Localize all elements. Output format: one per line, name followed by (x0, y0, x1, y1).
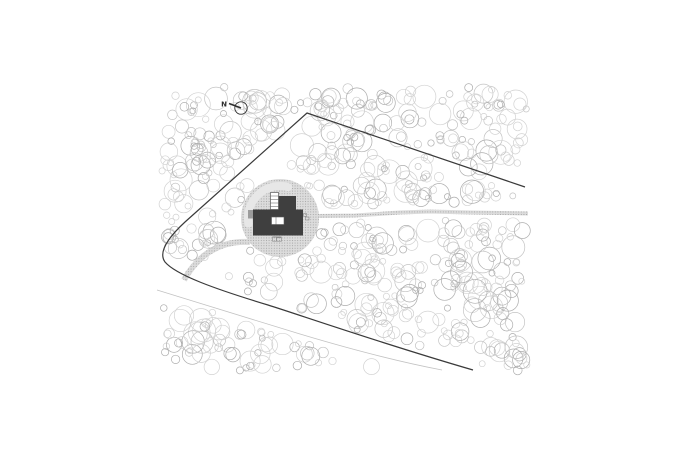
tree-canopy-circle (460, 108, 482, 130)
tree-canopy-circle (502, 236, 525, 259)
tree-canopy-circle (331, 297, 342, 308)
tree-canopy-circle (476, 140, 497, 161)
stair-outline (271, 193, 279, 210)
tree-canopy-circle (519, 278, 525, 284)
north-label: N (221, 101, 227, 109)
tree-canopy-circle (240, 179, 254, 193)
tree-canopy-circle (296, 270, 307, 281)
tree-canopy-circle (329, 265, 344, 280)
tree-canopy-circle (225, 188, 244, 207)
tree-canopy-circle (484, 103, 490, 109)
tree-canopy-circle (185, 203, 191, 209)
tree-canopy-circle (399, 104, 417, 122)
tree-canopy-circle (415, 341, 424, 350)
tree-canopy-circle (450, 335, 462, 347)
tree-canopy-circle (171, 183, 180, 192)
tree-canopy-circle (221, 84, 228, 91)
driveway (184, 242, 250, 280)
tree-canopy-circle (260, 283, 277, 300)
stair-icon (271, 193, 279, 210)
tree-canopy-circle (449, 249, 472, 272)
tree-canopy-circle (287, 161, 296, 170)
tree-canopy-circle (343, 84, 353, 94)
tree-canopy-circle (318, 153, 332, 167)
tree-canopy-circle (444, 194, 450, 200)
tree-canopy-circle (524, 362, 530, 368)
tree-canopy-circle (159, 168, 165, 174)
tree-canopy-circle (366, 320, 373, 327)
tree-canopy-circle (350, 261, 358, 269)
tree-canopy-circle (414, 141, 422, 149)
tree-canopy-circle (220, 111, 226, 117)
tree-canopy-circle (514, 259, 520, 265)
tree-canopy-circle (318, 347, 329, 358)
tree-canopy-circle (291, 106, 298, 113)
tree-canopy-circle (395, 271, 416, 292)
tree-canopy-circle (327, 132, 335, 140)
tree-canopy-circle (213, 161, 227, 175)
tree-canopy-circle (415, 316, 422, 323)
tree-canopy-circle (167, 156, 187, 176)
tree-canopy-circle (247, 247, 254, 254)
tree-canopy-circle (303, 98, 312, 107)
tree-canopy-circle (378, 278, 392, 292)
tree-canopy-circle (331, 200, 338, 207)
tree-canopy-circle (506, 218, 520, 232)
tree-canopy-circle (357, 219, 365, 227)
tree-canopy-circle (381, 321, 387, 327)
tree-canopy-circle (344, 134, 350, 140)
tree-canopy-circle (209, 211, 216, 218)
tree-canopy-circle (430, 255, 440, 265)
tree-canopy-circle (487, 330, 494, 337)
tree-canopy-circle (249, 280, 256, 287)
tree-canopy-circle (162, 125, 175, 138)
tree-canopy-circle (465, 241, 473, 249)
tree-canopy-circle (173, 214, 179, 220)
tree-canopy-circle (504, 361, 513, 370)
tree-canopy-circle (442, 217, 449, 224)
tree-canopy-circle (504, 92, 512, 100)
tree-canopy-circle (464, 93, 472, 101)
tree-canopy-circle (488, 183, 494, 189)
tree-canopy-circle (514, 98, 526, 110)
tree-canopy-circle (273, 364, 281, 372)
tree-canopy-circle (459, 158, 477, 176)
tree-canopy-circle (465, 84, 473, 92)
tree-canopy-circle (504, 259, 511, 266)
tree-canopy-circle (321, 229, 328, 236)
tree-canopy-circle (263, 108, 271, 116)
tree-canopy-circle (415, 163, 421, 169)
tree-canopy-circle (413, 85, 436, 108)
tree-canopy-circle (310, 89, 321, 100)
tree-canopy-circle (478, 247, 501, 270)
tree-canopy-circle (500, 319, 512, 331)
tree-canopy-circle (475, 341, 487, 353)
tree-canopy-circle (380, 258, 386, 264)
tree-canopy-circle (354, 327, 360, 333)
courtyard-opening (272, 217, 285, 225)
footpath (316, 212, 528, 217)
tree-canopy-circle (443, 130, 459, 146)
tree-canopy-circle (384, 96, 393, 105)
tree-canopy-circle (469, 234, 487, 252)
tree-canopy-circle (501, 152, 510, 161)
tree-canopy-circle (444, 305, 450, 311)
tree-canopy-circle (251, 91, 270, 110)
tree-canopy-circle (329, 357, 336, 364)
tree-canopy-circle (479, 291, 499, 311)
tree-canopy-circle (500, 109, 516, 125)
tree-canopy-circle (429, 103, 451, 125)
tree-canopy-circle (337, 144, 355, 162)
tree-canopy-circle (482, 338, 501, 357)
tree-canopy-circle (187, 127, 196, 136)
tree-canopy-circle (161, 305, 168, 312)
tree-canopy-circle (346, 160, 355, 169)
tree-canopy-circle (374, 312, 386, 324)
tree-canopy-circle (406, 238, 418, 250)
site-plan-page: N (0, 0, 700, 453)
tree-canopy-circle (244, 288, 251, 295)
tree-canopy-circle (447, 120, 457, 130)
tree-canopy-circle (498, 227, 506, 235)
tree-canopy-circle (297, 303, 307, 313)
tree-canopy-circle (417, 219, 440, 242)
tree-canopy-circle (185, 132, 192, 139)
tree-canopy-circle (333, 223, 346, 236)
tree-canopy-circle (445, 260, 451, 266)
tree-canopy-circle (254, 356, 272, 374)
tree-canopy-circle (446, 91, 453, 98)
tree-canopy-circle (338, 247, 345, 254)
tree-canopy-circle (195, 97, 201, 103)
tree-canopy-circle (490, 123, 501, 134)
tree-canopy-circle (293, 361, 302, 370)
tree-canopy-circle (371, 102, 377, 108)
tree-canopy-circle (514, 160, 521, 167)
tree-canopy-circle (199, 208, 216, 225)
tree-canopy-circle (332, 289, 342, 299)
tree-canopy-circle (362, 295, 377, 310)
tree-canopy-circle (203, 116, 209, 122)
tree-canopy-circle (513, 122, 522, 131)
tree-canopy-circle (297, 165, 304, 172)
courtyard-outline (272, 217, 285, 225)
tree-canopy-circle (313, 247, 322, 256)
tree-canopy-circle (505, 312, 524, 331)
tree-canopy-circle (456, 250, 468, 262)
tree-canopy-circle (504, 90, 527, 113)
tree-canopy-circle (290, 134, 313, 157)
tree-canopy-circle (428, 140, 434, 146)
tree-canopy-circle (396, 89, 411, 104)
tree-canopy-circle (396, 165, 410, 179)
tree-canopy-circle (204, 359, 219, 374)
tree-canopy-circle (172, 92, 179, 99)
tree-canopy-circle (268, 331, 274, 337)
tree-canopy-circle (513, 366, 522, 375)
tree-canopy-circle (417, 329, 425, 337)
tree-canopy-circle (171, 355, 179, 363)
tree-canopy-circle (449, 134, 458, 143)
tree-canopy-circle (166, 337, 181, 352)
tree-canopy-circle (298, 254, 311, 267)
tree-canopy-circle (307, 156, 316, 165)
tree-canopy-circle (434, 172, 443, 181)
tree-field (159, 84, 530, 375)
tree-canopy-circle (401, 333, 413, 345)
tree-canopy-circle (462, 184, 472, 194)
tree-canopy-circle (375, 320, 393, 338)
site-plan-drawing: N (0, 0, 700, 453)
tree-canopy-circle (254, 254, 266, 266)
tree-canopy-circle (228, 209, 234, 215)
tree-canopy-circle (298, 304, 306, 312)
tree-canopy-circle (497, 101, 504, 108)
building-left-step (248, 210, 254, 219)
tree-canopy-circle (361, 303, 372, 314)
tree-canopy-circle (444, 238, 459, 253)
tree-canopy-circle (461, 319, 467, 325)
tree-canopy-circle (178, 245, 186, 253)
tree-canopy-circle (336, 286, 355, 305)
tree-canopy-circle (261, 277, 267, 283)
tree-canopy-circle (386, 245, 397, 256)
tree-canopy-circle (380, 124, 388, 132)
tree-canopy-circle (318, 108, 336, 126)
tree-canopy-circle (307, 164, 316, 173)
tree-canopy-circle (180, 102, 189, 111)
tree-canopy-circle (296, 346, 312, 362)
tree-canopy-circle (170, 169, 192, 191)
tree-canopy-circle (314, 180, 325, 191)
tree-canopy-circle (202, 173, 208, 179)
tree-canopy-circle (365, 225, 371, 231)
tree-canopy-circle (364, 359, 380, 375)
tree-canopy-circle (339, 242, 347, 250)
tree-canopy-circle (439, 335, 451, 347)
tree-canopy-circle (484, 116, 493, 125)
tree-canopy-circle (169, 309, 191, 331)
tree-canopy-circle (399, 309, 412, 322)
tree-canopy-circle (225, 273, 232, 280)
tree-canopy-circle (243, 272, 253, 282)
tree-canopy-circle (187, 224, 196, 233)
tree-canopy-circle (489, 87, 495, 93)
tree-canopy-circle (237, 321, 255, 339)
tree-canopy-circle (305, 182, 311, 188)
tree-canopy-circle (353, 177, 370, 194)
tree-canopy-circle (164, 212, 170, 218)
tree-canopy-circle (513, 138, 523, 148)
tree-canopy-circle (449, 197, 459, 207)
tree-canopy-circle (513, 351, 530, 368)
tree-canopy-circle (307, 294, 327, 314)
tree-canopy-circle (222, 203, 231, 212)
tree-canopy-circle (247, 362, 254, 369)
tree-canopy-circle (400, 246, 407, 253)
tree-canopy-circle (187, 250, 197, 260)
tree-canopy-circle (266, 259, 283, 276)
tree-canopy-circle (439, 228, 450, 239)
tree-canopy-circle (479, 361, 485, 367)
tree-canopy-circle (510, 193, 516, 199)
tree-canopy-circle (354, 249, 371, 266)
tree-canopy-circle (240, 351, 260, 371)
tree-canopy-circle (468, 139, 474, 145)
tree-canopy-circle (208, 318, 230, 340)
building-upper-volume (279, 196, 297, 210)
tree-canopy-circle (396, 132, 406, 142)
tree-canopy-circle (383, 293, 389, 299)
tree-canopy-circle (475, 192, 481, 198)
tree-canopy-circle (367, 149, 377, 159)
tree-canopy-circle (176, 241, 183, 248)
